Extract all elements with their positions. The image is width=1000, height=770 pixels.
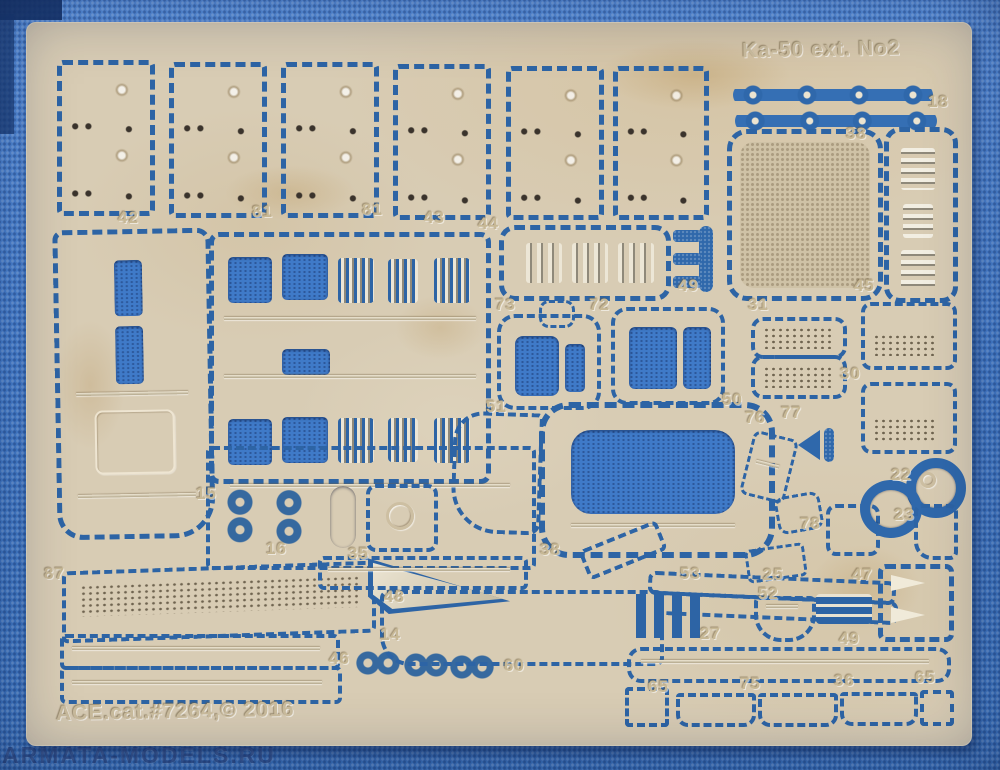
part-number-label: 14 xyxy=(380,625,401,645)
part-number-label: 47 xyxy=(852,565,873,585)
part-number-label: 25 xyxy=(763,565,784,585)
part-number-label: 35 xyxy=(348,544,369,564)
part-number-label: 27 xyxy=(700,624,721,644)
part-number-label: 48 xyxy=(384,587,405,607)
part-number-label: 31 xyxy=(748,295,769,315)
part-number-label: 75 xyxy=(740,674,761,694)
part-number-label: 30 xyxy=(840,364,861,384)
part-number-label: 50 xyxy=(722,390,743,410)
part-number-label: 78 xyxy=(800,514,821,534)
part-number-label: 49 xyxy=(839,629,860,649)
part-number-label: 43 xyxy=(424,208,445,228)
part-number-label: 45 xyxy=(854,276,875,296)
photo-background: Ka-50 ext. No2 ACE.cat.#7264,© 2016 1842… xyxy=(0,0,1000,770)
part-number-label: 72 xyxy=(589,295,610,315)
part-number-label: 76 xyxy=(745,408,766,428)
part-number-label: 81 xyxy=(252,202,273,222)
part-number-label: 44 xyxy=(478,214,499,234)
part-number-label: 53 xyxy=(680,564,701,584)
part-number-label: 51 xyxy=(486,397,507,417)
part-number-label: 60 xyxy=(504,656,525,676)
part-number-label: 49 xyxy=(678,276,699,296)
part-labels-layer: 1842818143443845497372313050767722237815… xyxy=(0,0,1000,770)
part-number-label: 65 xyxy=(648,677,669,697)
part-number-label: 42 xyxy=(118,208,139,228)
part-number-label: 22 xyxy=(891,465,912,485)
part-number-label: 87 xyxy=(44,564,65,584)
watermark-text: ARMATA-MODELS.RU xyxy=(2,742,276,769)
part-number-label: 18 xyxy=(928,92,949,112)
part-number-label: 38 xyxy=(846,124,867,144)
part-number-label: 16 xyxy=(266,539,287,559)
part-number-label: 23 xyxy=(894,505,915,525)
part-number-label: 73 xyxy=(495,295,516,315)
part-number-label: 46 xyxy=(329,649,350,669)
part-number-label: 15 xyxy=(196,484,217,504)
part-number-label: 81 xyxy=(362,200,383,220)
sheet-title: Ka-50 ext. No2 xyxy=(742,37,901,64)
part-number-label: 65 xyxy=(915,668,936,688)
catalog-text: ACE.cat.#7264,© 2016 xyxy=(56,698,295,726)
part-number-label: 38 xyxy=(540,540,561,560)
part-number-label: 52 xyxy=(758,584,779,604)
part-number-label: 36 xyxy=(834,671,855,691)
part-number-label: 77 xyxy=(781,403,802,423)
